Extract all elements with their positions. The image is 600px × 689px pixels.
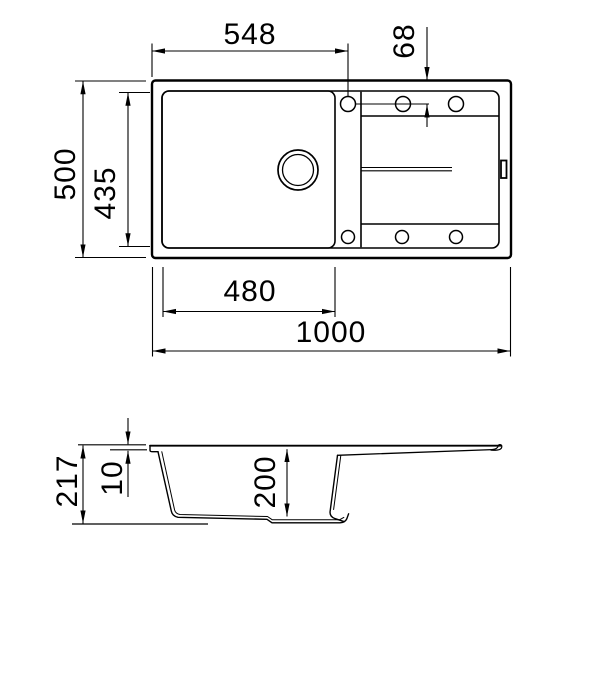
tap-hole <box>450 231 463 244</box>
dim-label-217: 217 <box>53 454 83 507</box>
side-view <box>150 445 502 523</box>
bowl-right-wall-inner <box>334 456 341 510</box>
bowl-outline <box>162 91 335 248</box>
top-view <box>152 81 511 259</box>
dim-548 <box>152 44 348 97</box>
dim-217 <box>72 445 208 524</box>
tap-hole <box>342 231 355 244</box>
dim-label-1000: 1000 <box>296 318 367 348</box>
dim-435 <box>119 93 150 247</box>
drain-hole-inner <box>283 155 314 186</box>
bowl-right-wall-outer <box>330 455 344 521</box>
technical-drawing-canvas: 548 68 500 435 480 1000 217 10 200 <box>0 0 600 689</box>
tap-hole <box>396 231 409 244</box>
dim-label-548: 548 <box>223 20 276 50</box>
dim-label-10: 10 <box>98 460 128 495</box>
dim-label-500: 500 <box>51 147 81 200</box>
overflow-notch <box>501 161 507 179</box>
tap-hole <box>449 97 464 112</box>
dim-label-435: 435 <box>91 166 121 219</box>
drainer-underside <box>338 450 493 456</box>
dim-label-68: 68 <box>390 23 420 58</box>
dim-label-480: 480 <box>223 277 276 307</box>
tap-hole <box>341 97 356 112</box>
drain-hole-outer <box>278 150 318 190</box>
sink-outer-edge <box>152 81 511 259</box>
dim-label-200: 200 <box>251 455 281 508</box>
top-view-dimensions <box>75 27 511 357</box>
